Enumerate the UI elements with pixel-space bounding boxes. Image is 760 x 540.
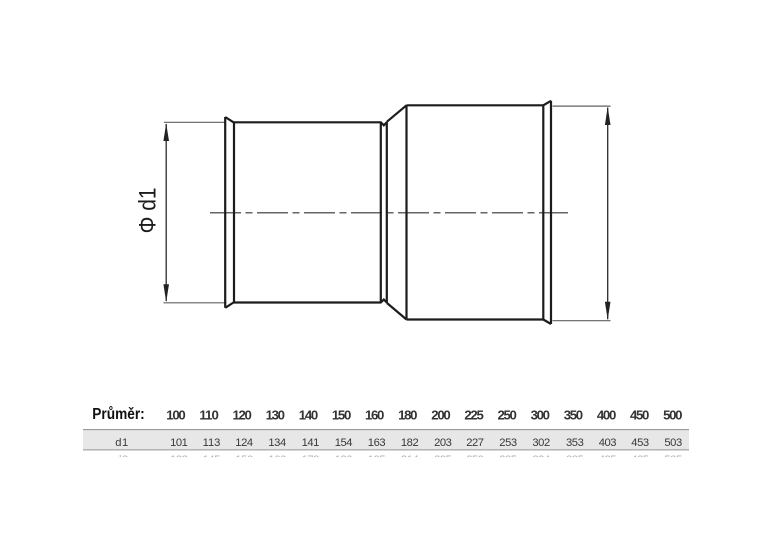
svg-text:180: 180 xyxy=(398,408,417,423)
svg-text:500: 500 xyxy=(663,408,682,423)
svg-text:124: 124 xyxy=(235,437,253,449)
svg-text:163: 163 xyxy=(368,437,386,449)
svg-text:203: 203 xyxy=(434,437,452,449)
svg-text:160: 160 xyxy=(365,408,384,423)
svg-text:130: 130 xyxy=(266,408,285,423)
svg-text:d1: d1 xyxy=(115,437,128,449)
svg-text:134: 134 xyxy=(268,437,286,449)
svg-text:400: 400 xyxy=(597,408,616,423)
svg-text:113: 113 xyxy=(203,437,221,449)
svg-text:302: 302 xyxy=(532,437,550,449)
svg-text:Φ d1: Φ d1 xyxy=(134,187,161,233)
svg-text:141: 141 xyxy=(302,437,320,449)
svg-text:227: 227 xyxy=(466,437,484,449)
svg-text:154: 154 xyxy=(335,437,353,449)
svg-text:100: 100 xyxy=(166,408,185,423)
svg-text:110: 110 xyxy=(199,408,218,423)
svg-text:503: 503 xyxy=(664,437,682,449)
svg-text:200: 200 xyxy=(431,408,450,423)
svg-text:250: 250 xyxy=(498,408,517,423)
svg-text:300: 300 xyxy=(531,408,550,423)
svg-text:253: 253 xyxy=(499,437,517,449)
svg-text:350: 350 xyxy=(564,408,583,423)
svg-text:140: 140 xyxy=(299,408,318,423)
svg-text:120: 120 xyxy=(233,408,252,423)
svg-text:225: 225 xyxy=(464,408,483,423)
svg-text:353: 353 xyxy=(566,437,584,449)
svg-text:450: 450 xyxy=(630,408,649,423)
svg-text:Průměr:: Průměr: xyxy=(92,406,144,423)
svg-text:182: 182 xyxy=(401,437,419,449)
svg-text:403: 403 xyxy=(599,437,617,449)
svg-text:150: 150 xyxy=(332,408,351,423)
svg-text:453: 453 xyxy=(631,437,649,449)
svg-text:101: 101 xyxy=(170,437,188,449)
